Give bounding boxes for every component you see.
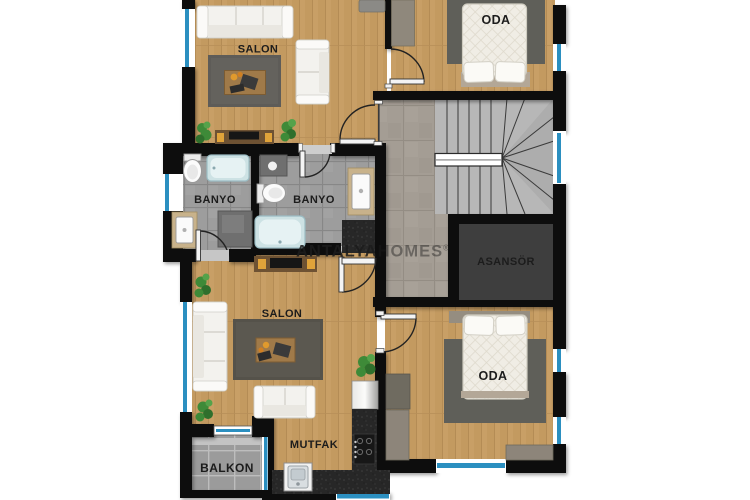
svg-text:ODA: ODA: [479, 369, 508, 383]
svg-text:ANTALYAHOMES®: ANTALYAHOMES®: [296, 243, 450, 261]
svg-text:SALON: SALON: [262, 308, 303, 320]
svg-text:BALKON: BALKON: [200, 461, 254, 475]
svg-text:SALON: SALON: [238, 44, 279, 56]
svg-text:BANYO: BANYO: [293, 194, 335, 206]
svg-text:BANYO: BANYO: [194, 194, 236, 206]
svg-text:ASANSÖR: ASANSÖR: [477, 255, 535, 268]
svg-text:MUTFAK: MUTFAK: [290, 439, 338, 451]
svg-text:ODA: ODA: [482, 13, 511, 27]
